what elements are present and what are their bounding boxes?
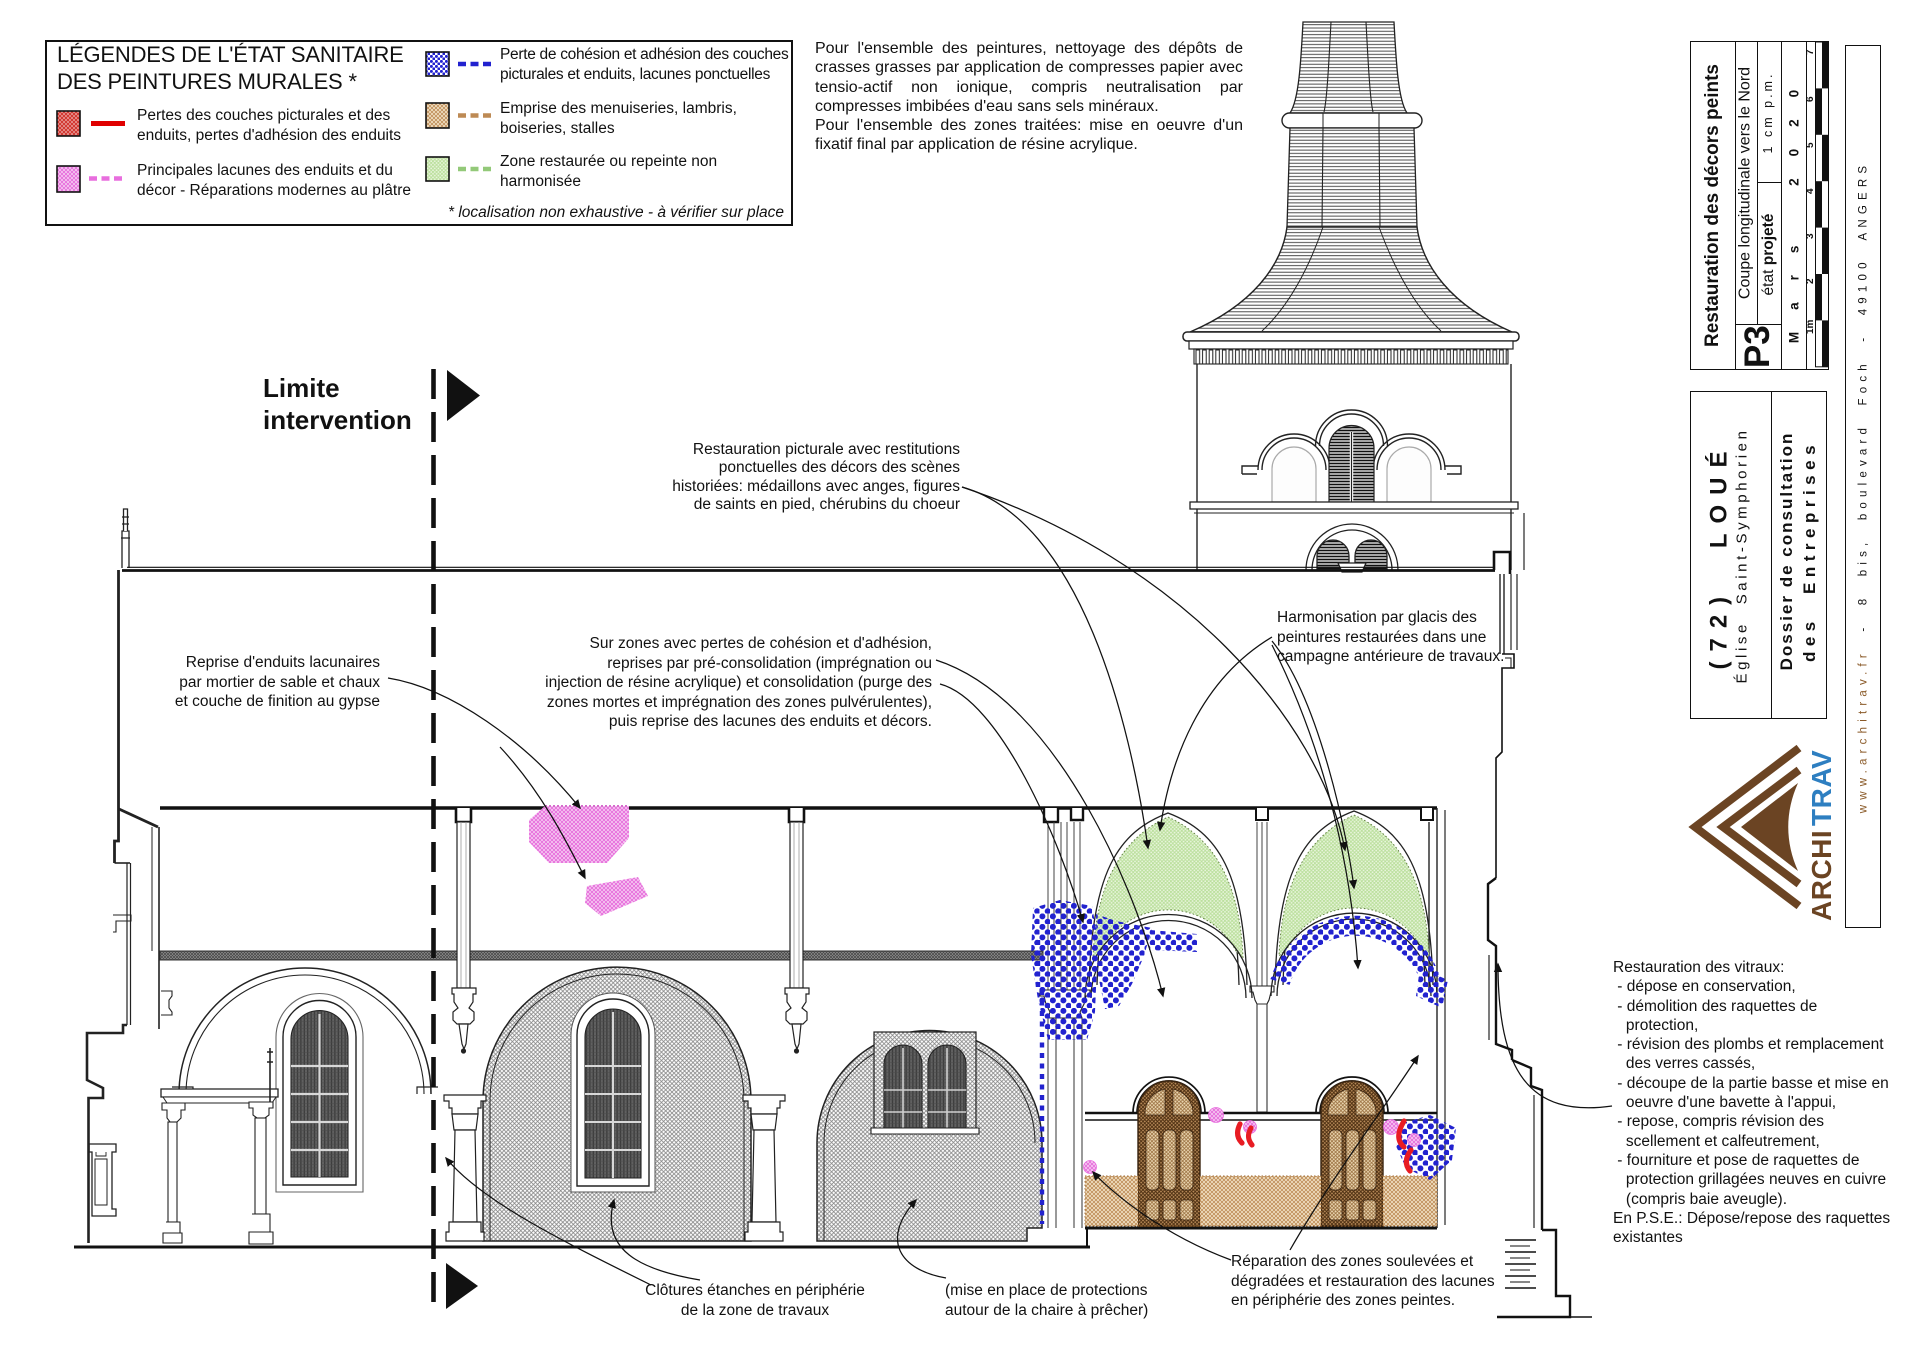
svg-text:TRAV: TRAV [1806, 750, 1837, 826]
svg-text:ARCHI: ARCHI [1806, 830, 1837, 921]
